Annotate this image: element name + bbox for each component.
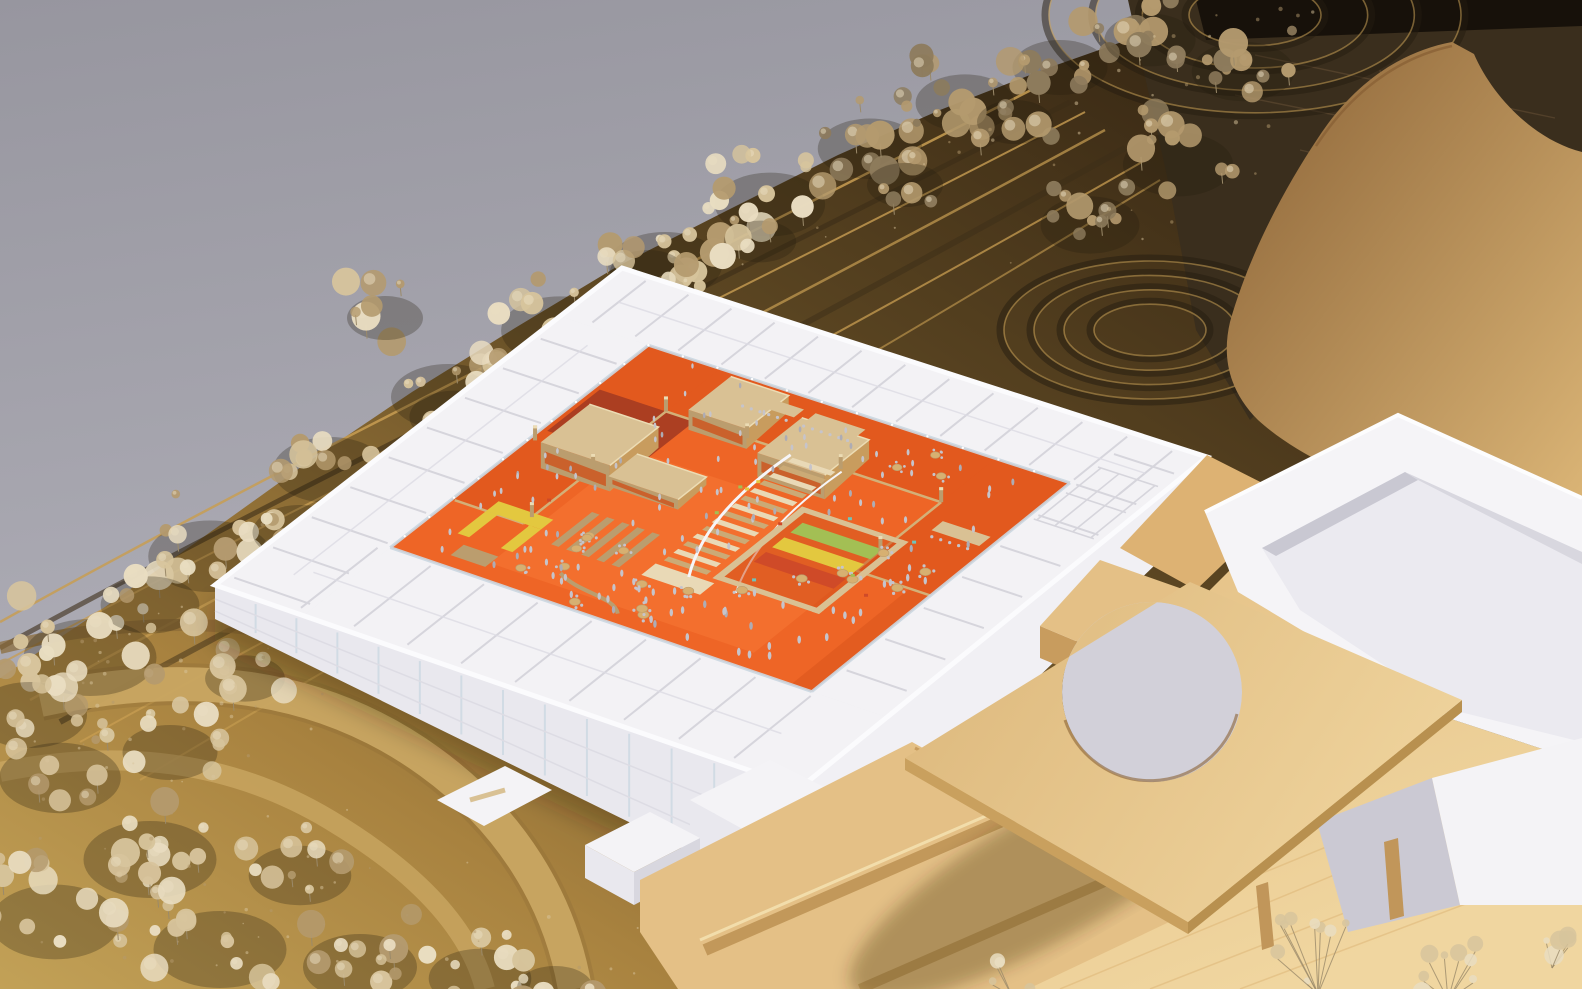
ground-speckle bbox=[369, 867, 371, 869]
tiny-figure bbox=[594, 484, 597, 490]
tree-canopy-puff bbox=[1070, 76, 1088, 94]
glass-post bbox=[751, 378, 753, 380]
tree-canopy-highlight bbox=[262, 514, 267, 519]
tree-canopy-puff bbox=[40, 755, 60, 775]
tree-canopy-puff bbox=[886, 191, 902, 207]
ground-speckle bbox=[220, 701, 224, 705]
tree-canopy-puff bbox=[91, 735, 100, 744]
tree-canopy-highlight bbox=[1120, 181, 1128, 189]
tiny-figure bbox=[649, 616, 652, 624]
tiny-figure bbox=[653, 620, 656, 628]
ground-speckle bbox=[1153, 35, 1156, 38]
tiny-figure bbox=[832, 606, 836, 614]
tree-canopy-puff bbox=[1287, 26, 1297, 36]
ground-speckle bbox=[307, 855, 310, 858]
tiny-figure bbox=[652, 588, 655, 595]
tree-canopy-puff bbox=[710, 243, 736, 269]
tiny-figure bbox=[850, 443, 853, 449]
tree-canopy-highlight bbox=[332, 852, 343, 863]
tree-canopy-puff bbox=[71, 714, 83, 726]
tree-canopy-highlight bbox=[158, 553, 166, 561]
glass-post bbox=[962, 447, 964, 449]
glass-post bbox=[1033, 470, 1035, 472]
chair bbox=[922, 564, 925, 567]
ground-speckle bbox=[1078, 132, 1081, 135]
dried-tree-puff bbox=[989, 977, 997, 985]
tree-canopy-highlight bbox=[1258, 71, 1264, 77]
tree-canopy-puff bbox=[1218, 28, 1248, 58]
tiny-figure bbox=[773, 508, 776, 515]
tree-canopy-puff bbox=[288, 871, 296, 879]
glass-post bbox=[477, 477, 479, 479]
ground-speckle bbox=[1267, 124, 1271, 128]
tree-canopy-puff bbox=[856, 96, 865, 105]
tree-canopy-puff bbox=[150, 925, 161, 936]
ground-speckle bbox=[923, 163, 925, 165]
chair bbox=[618, 544, 621, 547]
tiny-figure bbox=[852, 616, 856, 624]
tree-canopy-highlight bbox=[1146, 120, 1152, 126]
cafe-stool bbox=[741, 404, 744, 407]
glass-post bbox=[453, 496, 455, 498]
tree-canopy-puff bbox=[674, 252, 699, 277]
ground-speckle bbox=[466, 862, 468, 864]
chair bbox=[841, 566, 844, 569]
tiny-figure bbox=[859, 499, 862, 506]
tiny-figure bbox=[805, 443, 808, 449]
tree-canopy-highlight bbox=[1161, 115, 1173, 127]
ground-speckle bbox=[323, 923, 325, 925]
tiny-figure bbox=[767, 642, 771, 650]
tiny-figure bbox=[904, 516, 907, 523]
cafe-stool bbox=[802, 424, 805, 427]
tiny-figure bbox=[560, 578, 563, 585]
ground-speckle bbox=[445, 957, 449, 961]
tiny-figure bbox=[560, 564, 563, 571]
tree-canopy-puff bbox=[1127, 134, 1155, 162]
tiny-figure bbox=[684, 391, 687, 397]
tree-canopy-puff bbox=[189, 848, 206, 865]
tree-canopy-highlight bbox=[89, 615, 101, 627]
tree-canopy-highlight bbox=[760, 187, 768, 195]
tree-canopy-puff bbox=[261, 866, 284, 889]
tiny-figure bbox=[755, 420, 758, 426]
tiny-figure bbox=[883, 580, 886, 588]
tree-canopy-highlight bbox=[704, 204, 710, 210]
tree-canopy-puff bbox=[1009, 77, 1027, 95]
tree-canopy-highlight bbox=[318, 453, 327, 462]
stool bbox=[939, 538, 942, 541]
tree-canopy-puff bbox=[1046, 181, 1061, 196]
ground-speckle bbox=[310, 728, 313, 731]
tree-canopy-highlight bbox=[417, 378, 422, 383]
ground-speckle bbox=[1246, 87, 1248, 89]
ground-speckle bbox=[258, 936, 260, 938]
tree-canopy-highlight bbox=[310, 842, 318, 850]
tiny-figure bbox=[667, 458, 670, 464]
cafe-stool bbox=[767, 413, 770, 416]
dried-tree-puff bbox=[1441, 951, 1449, 959]
tree-canopy-puff bbox=[901, 101, 912, 112]
tree-canopy-highlight bbox=[1095, 24, 1100, 29]
tiny-figure bbox=[691, 363, 693, 368]
chair bbox=[685, 595, 688, 598]
ground-speckle bbox=[270, 909, 273, 912]
tree-canopy-highlight bbox=[914, 57, 924, 67]
tiny-figure bbox=[827, 509, 830, 516]
tree-canopy-highlight bbox=[731, 217, 735, 221]
tree-canopy-highlight bbox=[223, 678, 235, 690]
tiny-figure bbox=[700, 486, 703, 493]
tiny-figure bbox=[907, 449, 910, 455]
tree-canopy-puff bbox=[146, 623, 156, 633]
tiny-figure bbox=[546, 464, 549, 470]
tiny-figure bbox=[768, 652, 772, 660]
tiny-figure bbox=[889, 579, 892, 587]
tree-canopy-highlight bbox=[1097, 217, 1103, 223]
chair bbox=[632, 609, 635, 612]
tree-canopy-highlight bbox=[127, 567, 138, 578]
tree-canopy-highlight bbox=[742, 240, 748, 246]
tree-canopy-puff bbox=[855, 124, 879, 148]
ground-speckle bbox=[577, 966, 581, 970]
tiny-figure bbox=[492, 561, 495, 568]
ground-speckle bbox=[211, 775, 215, 779]
tiny-figure bbox=[843, 611, 847, 619]
ground-speckle bbox=[894, 227, 896, 229]
tiny-figure bbox=[910, 470, 913, 477]
tiny-figure bbox=[987, 491, 990, 498]
tiny-figure bbox=[556, 473, 559, 479]
tree-canopy-highlight bbox=[902, 122, 913, 133]
tiny-figure bbox=[531, 497, 534, 503]
tree-canopy-puff bbox=[762, 218, 778, 234]
tree-canopy-highlight bbox=[524, 295, 534, 305]
tiny-figure bbox=[654, 436, 657, 442]
tree-canopy-highlight bbox=[1004, 120, 1015, 131]
dried-tree-puff bbox=[1543, 937, 1549, 943]
tiny-figure bbox=[516, 553, 519, 560]
ground-speckle bbox=[170, 959, 174, 963]
tiny-figure bbox=[569, 465, 572, 471]
tree-canopy-puff bbox=[389, 967, 401, 979]
tiny-figure bbox=[673, 587, 676, 594]
ground-speckle bbox=[37, 847, 39, 849]
tree-canopy-highlight bbox=[571, 289, 575, 293]
tree-canopy-puff bbox=[140, 715, 157, 732]
tree-canopy-highlight bbox=[377, 955, 382, 960]
chair bbox=[680, 586, 683, 589]
tree-canopy-highlight bbox=[659, 236, 665, 242]
ground-speckle bbox=[128, 633, 131, 636]
tree-canopy-highlight bbox=[103, 902, 116, 915]
tree-canopy-highlight bbox=[147, 710, 151, 714]
tiny-figure bbox=[620, 570, 623, 577]
tree-canopy-puff bbox=[1027, 71, 1051, 95]
ground-speckle bbox=[242, 923, 244, 925]
tree-canopy-puff bbox=[1158, 181, 1176, 199]
tree-canopy-highlight bbox=[213, 731, 222, 740]
chair bbox=[940, 450, 943, 453]
chair bbox=[623, 544, 626, 547]
dried-tree-puff bbox=[1469, 975, 1477, 983]
tree-canopy-highlight bbox=[989, 79, 993, 83]
chair bbox=[560, 560, 563, 563]
tree-canopy-puff bbox=[1202, 54, 1213, 65]
tree-canopy-highlight bbox=[1029, 115, 1041, 127]
glass-post bbox=[502, 458, 504, 460]
ground-speckle bbox=[1208, 35, 1211, 38]
ground-speckle bbox=[1141, 238, 1143, 240]
tree-canopy-puff bbox=[144, 664, 165, 685]
ground-speckle bbox=[98, 660, 100, 662]
ground-speckle bbox=[991, 138, 994, 141]
dried-tree-puff bbox=[1324, 925, 1336, 937]
ground-speckle bbox=[106, 660, 110, 664]
cafe-table bbox=[796, 575, 807, 582]
tiny-figure bbox=[529, 546, 532, 553]
glass-post bbox=[997, 458, 999, 460]
tiny-figure bbox=[632, 578, 635, 585]
chair bbox=[886, 546, 889, 549]
cafe-stool bbox=[828, 433, 831, 436]
chair bbox=[895, 461, 898, 464]
ground-speckle bbox=[1170, 220, 1173, 223]
tiny-figure bbox=[441, 546, 444, 553]
ground-speckle bbox=[637, 927, 639, 929]
ground-speckle bbox=[336, 960, 339, 963]
tiny-figure bbox=[881, 518, 884, 525]
ground-speckle bbox=[78, 747, 81, 750]
ground-speckle bbox=[95, 704, 99, 708]
cafe-table bbox=[892, 464, 902, 471]
ground-speckle bbox=[816, 226, 819, 229]
tree-canopy-highlight bbox=[306, 886, 310, 890]
tree-canopy-highlight bbox=[283, 838, 293, 848]
ground-speckle bbox=[203, 883, 206, 886]
ground-speckle bbox=[957, 150, 960, 153]
tree-canopy-puff bbox=[76, 888, 98, 910]
cafe-table bbox=[736, 586, 747, 593]
cafe-stool bbox=[758, 410, 761, 413]
tree-canopy-puff bbox=[1281, 63, 1295, 77]
tree-canopy-highlight bbox=[512, 291, 523, 302]
tree-canopy-puff bbox=[13, 634, 28, 649]
tiny-figure bbox=[753, 444, 756, 450]
chair bbox=[648, 585, 651, 588]
ground-speckle bbox=[320, 886, 323, 889]
cafe-table bbox=[878, 549, 889, 556]
tree-canopy-highlight bbox=[934, 110, 938, 114]
tree-canopy-highlight bbox=[1117, 21, 1129, 33]
ground-speckle bbox=[1234, 120, 1238, 124]
tiny-figure bbox=[756, 496, 759, 503]
tree-canopy-highlight bbox=[864, 155, 873, 164]
tiny-figure bbox=[785, 435, 788, 441]
ground-speckle bbox=[1075, 101, 1079, 105]
tree-canopy-highlight bbox=[20, 656, 31, 667]
dried-tree-puff bbox=[1467, 936, 1483, 952]
tree-canopy-highlight bbox=[81, 791, 89, 799]
tree-canopy-puff bbox=[87, 764, 108, 785]
ground-speckle bbox=[547, 915, 551, 919]
glass-post bbox=[682, 355, 684, 357]
tree-canopy-puff bbox=[39, 646, 54, 661]
ground-speckle bbox=[105, 766, 108, 769]
ground-speckle bbox=[1172, 34, 1176, 38]
accent-seat bbox=[864, 594, 868, 597]
dried-tree-puff bbox=[1418, 971, 1429, 982]
tree-canopy-puff bbox=[119, 588, 134, 603]
cafe-table bbox=[618, 547, 628, 554]
tree-canopy-highlight bbox=[1244, 84, 1254, 94]
timber-column-cap bbox=[664, 396, 668, 399]
chair bbox=[918, 575, 921, 578]
ground-speckle bbox=[254, 705, 256, 707]
ground-speckle bbox=[170, 779, 172, 781]
chair bbox=[615, 552, 618, 555]
tree-canopy-puff bbox=[8, 851, 31, 874]
ground-speckle bbox=[104, 848, 106, 850]
cafe-stool bbox=[785, 419, 788, 422]
tree-canopy-highlight bbox=[1061, 191, 1066, 196]
tree-canopy-highlight bbox=[336, 940, 342, 946]
ground-speckle bbox=[247, 754, 250, 757]
cafe-table bbox=[936, 473, 946, 480]
chair bbox=[689, 595, 692, 598]
tree-canopy-puff bbox=[933, 79, 950, 96]
ground-speckle bbox=[181, 781, 183, 783]
ground-speckle bbox=[82, 681, 85, 684]
tree-canopy-highlight bbox=[1042, 61, 1050, 69]
tree-canopy-highlight bbox=[42, 621, 49, 628]
chair bbox=[902, 590, 905, 593]
tiny-figure bbox=[670, 609, 673, 617]
ground-speckle bbox=[1196, 75, 1200, 79]
ground-speckle bbox=[633, 972, 635, 974]
chair bbox=[899, 581, 902, 584]
ground-speckle bbox=[1117, 69, 1120, 72]
dried-tree-puff bbox=[994, 957, 1004, 967]
tiny-figure bbox=[797, 636, 801, 644]
ground-speckle bbox=[406, 914, 409, 917]
dried-tree-puff bbox=[1550, 931, 1569, 950]
tree-canopy-puff bbox=[418, 946, 436, 964]
tree-canopy-puff bbox=[54, 935, 67, 948]
tiny-figure bbox=[658, 504, 661, 511]
tree-canopy-puff bbox=[512, 949, 535, 972]
tiny-figure bbox=[716, 489, 719, 496]
tree-canopy-puff bbox=[271, 677, 297, 703]
tiny-figure bbox=[720, 487, 723, 494]
chair bbox=[642, 619, 645, 622]
tiny-figure bbox=[612, 606, 615, 614]
ground-speckle bbox=[103, 672, 107, 676]
timber-column-cap bbox=[591, 454, 595, 457]
tree-canopy-highlight bbox=[512, 982, 517, 987]
tiny-figure bbox=[516, 473, 519, 479]
tree-canopy-puff bbox=[122, 642, 150, 670]
ground-speckle bbox=[610, 967, 613, 970]
tree-canopy-highlight bbox=[896, 89, 904, 97]
model-photo-stage bbox=[0, 0, 1582, 989]
tiny-figure bbox=[681, 535, 684, 542]
tree-canopy-highlight bbox=[161, 880, 173, 892]
ground-speckle bbox=[1296, 14, 1300, 18]
ground-speckle bbox=[267, 815, 270, 818]
stool bbox=[948, 541, 951, 544]
chair bbox=[932, 449, 935, 452]
tree-canopy-highlight bbox=[200, 824, 205, 829]
tiny-figure bbox=[833, 495, 836, 502]
chair bbox=[792, 575, 795, 578]
tiny-figure bbox=[686, 633, 690, 641]
tiny-figure bbox=[551, 572, 554, 579]
tree-canopy-highlight bbox=[397, 281, 401, 285]
ground-speckle bbox=[473, 930, 476, 933]
tree-canopy-highlight bbox=[9, 712, 17, 720]
tiny-figure bbox=[754, 459, 757, 465]
tiny-figure bbox=[881, 472, 884, 479]
tree-canopy-puff bbox=[350, 307, 361, 318]
tree-canopy-highlight bbox=[490, 305, 500, 315]
glass-post bbox=[428, 516, 430, 518]
tiny-figure bbox=[727, 543, 730, 550]
tree-canopy-puff bbox=[1066, 193, 1093, 220]
chair bbox=[947, 476, 950, 479]
ground-speckle bbox=[90, 681, 93, 684]
ground-speckle bbox=[83, 743, 85, 745]
ground-speckle bbox=[244, 908, 247, 911]
ground-speckle bbox=[223, 911, 225, 913]
cafe-table bbox=[683, 587, 694, 594]
tree-canopy-highlight bbox=[211, 564, 219, 572]
tiny-figure bbox=[763, 410, 766, 416]
tiny-figure bbox=[749, 622, 753, 630]
tiny-figure bbox=[739, 383, 742, 389]
ground-speckle bbox=[948, 141, 950, 143]
accent-seat bbox=[912, 541, 916, 544]
chair bbox=[932, 569, 935, 572]
tiny-figure bbox=[577, 564, 580, 571]
tree-canopy-highlight bbox=[616, 252, 626, 262]
glass-post bbox=[821, 401, 823, 403]
tiny-figure bbox=[959, 465, 962, 472]
tree-canopy-puff bbox=[221, 932, 232, 943]
ground-speckle bbox=[1151, 94, 1154, 97]
cafe-table bbox=[920, 568, 931, 576]
chair bbox=[580, 604, 583, 607]
ground-speckle bbox=[123, 956, 127, 960]
ground-speckle bbox=[93, 639, 97, 643]
tree-canopy-puff bbox=[150, 787, 179, 816]
cafe-table bbox=[837, 570, 848, 577]
tree-canopy-puff bbox=[1138, 105, 1149, 116]
glass-post bbox=[786, 389, 788, 391]
tree-canopy-puff bbox=[361, 295, 383, 317]
tree-canopy-puff bbox=[7, 581, 36, 610]
tiny-figure bbox=[661, 432, 664, 438]
chair bbox=[634, 586, 637, 589]
ground-speckle bbox=[825, 236, 827, 238]
tiny-figure bbox=[703, 600, 706, 608]
tiny-figure bbox=[615, 463, 618, 469]
dried-tree-puff bbox=[1309, 918, 1320, 929]
timber-column-cap bbox=[878, 536, 882, 539]
tiny-figure bbox=[1011, 479, 1014, 486]
architectural-model-photo bbox=[0, 0, 1582, 989]
tiny-figure bbox=[681, 606, 684, 614]
